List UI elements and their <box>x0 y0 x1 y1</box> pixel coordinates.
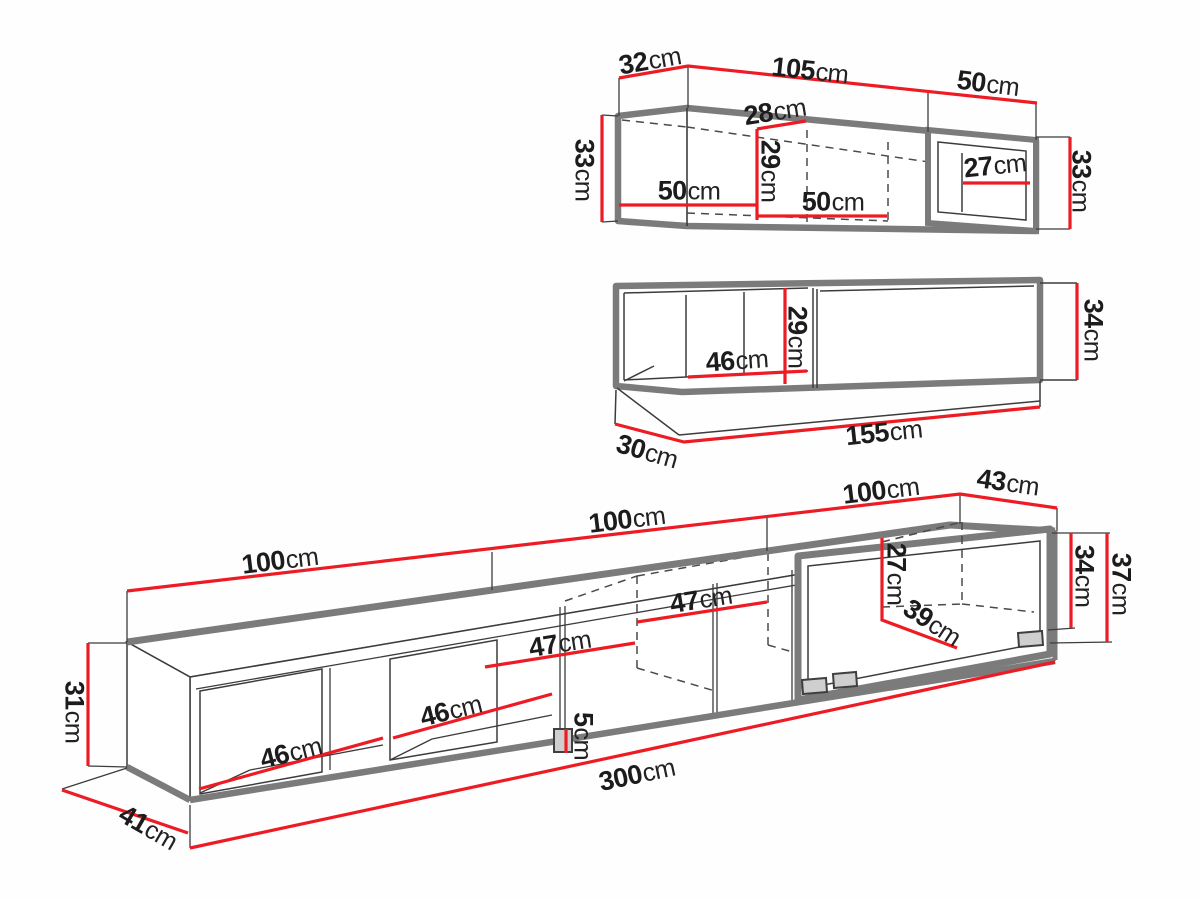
dim-label-top-unit-height-left: 33cm <box>570 139 597 201</box>
furniture-dimension-diagram: 32cm 105cm 50cm 33cm 28cm 29cm 50cm 50cm… <box>0 0 1200 900</box>
dim-label-bottom-unit-height-left: 31cm <box>60 681 87 743</box>
dim-label-bottom-unit-height-total: 37cm <box>1107 553 1134 615</box>
dim-label-middle-unit-inner-height: 29cm <box>783 306 810 368</box>
dim-label-top-unit-inner-width-a: 50cm <box>658 177 720 204</box>
dim-label-middle-unit-height-right: 34cm <box>1079 299 1106 361</box>
dim-label-middle-unit-inner-width: 46cm <box>705 345 769 377</box>
dim-label-top-unit-inner-width-end: 27cm <box>962 149 1027 183</box>
dim-label-bottom-unit-inner-height-right: 27cm <box>882 543 909 605</box>
bottom-stand-body <box>62 494 1112 848</box>
dim-label-bottom-unit-height-body: 34cm <box>1070 545 1097 607</box>
middle-cabinet-body <box>615 280 1077 442</box>
dim-label-bottom-unit-foot-height: 5cm <box>569 712 596 760</box>
dim-label-top-unit-inner-height: 29cm <box>756 140 783 202</box>
furniture-line-art <box>0 0 1200 900</box>
dim-label-top-unit-inner-width-b: 50cm <box>802 188 864 215</box>
dim-label-top-unit-height-right: 33cm <box>1067 150 1094 212</box>
